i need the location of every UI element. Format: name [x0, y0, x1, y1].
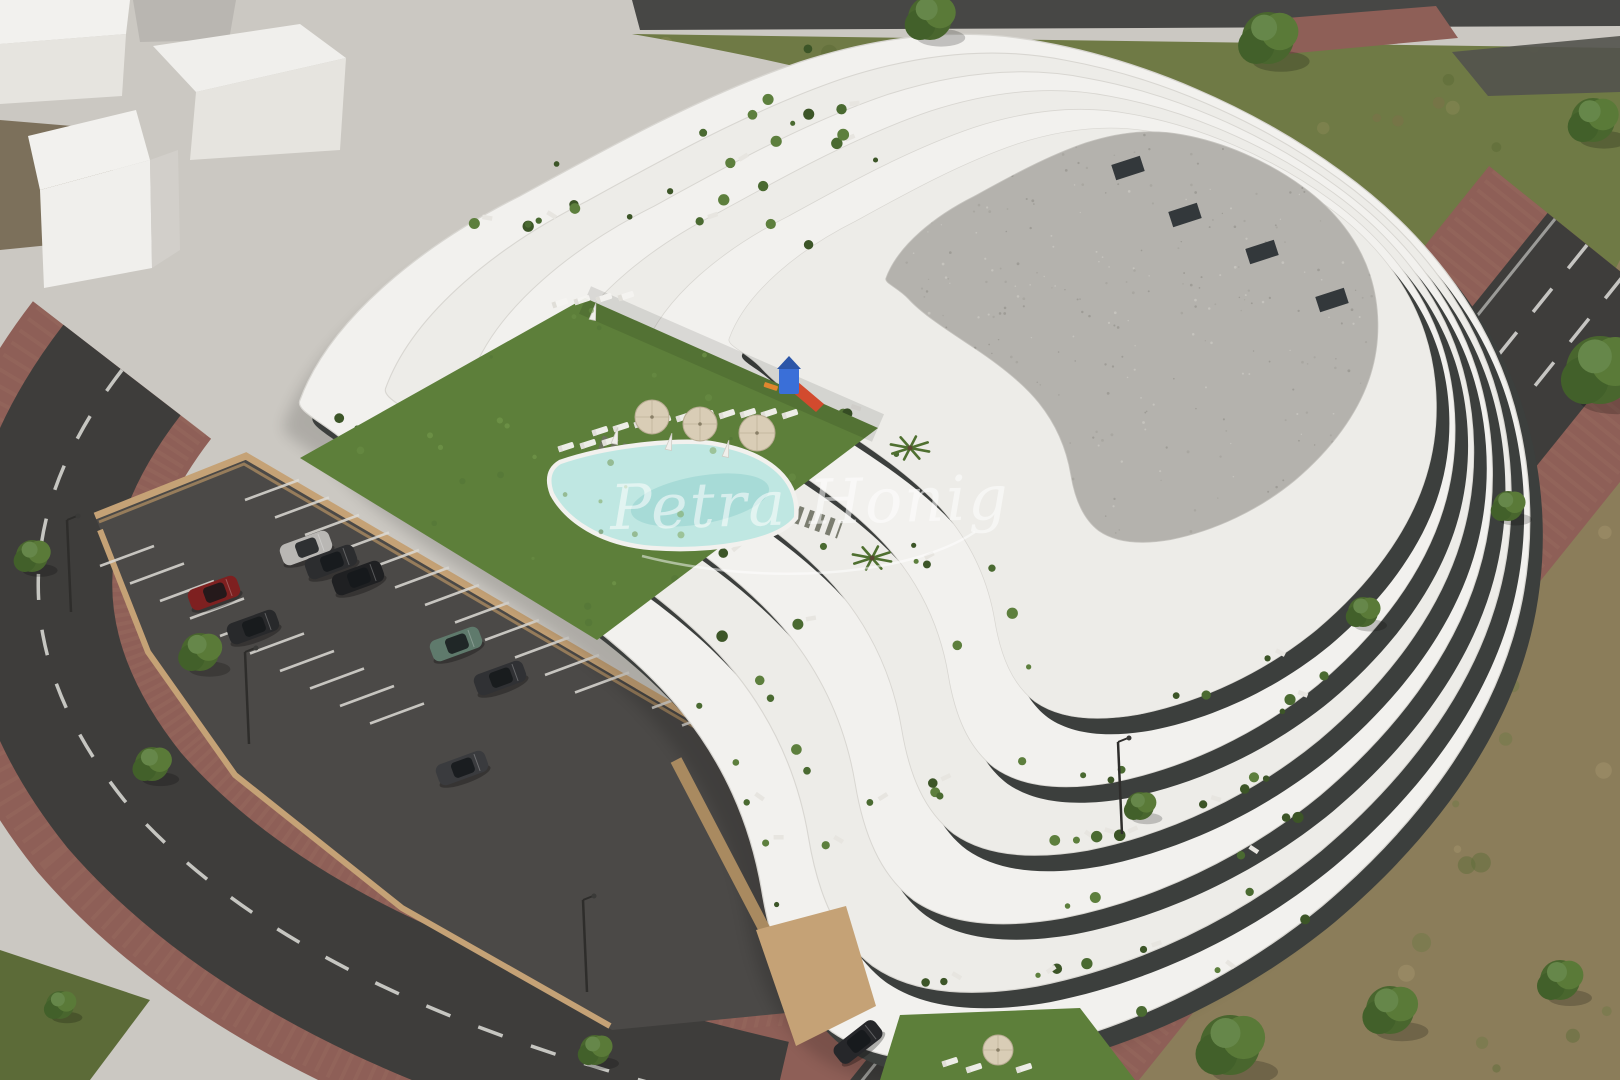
massing-front-corner: [0, 34, 126, 104]
terrace-plant: [1114, 829, 1126, 841]
terrace-plant: [1026, 664, 1031, 669]
terrace-plant: [732, 759, 739, 766]
terrace-plant: [1007, 608, 1018, 619]
terrace-plant: [716, 630, 728, 642]
terrace-plant: [1090, 892, 1101, 903]
terrace-plant: [718, 548, 728, 558]
terrace-plant: [1263, 775, 1270, 782]
terrace-plant: [1136, 1006, 1147, 1017]
terrace-plant: [1202, 690, 1211, 699]
terrace-plant: [936, 792, 943, 799]
terrace-plant: [1073, 837, 1080, 844]
terrace-plant: [804, 45, 813, 54]
terrace-plant: [1300, 914, 1310, 924]
terrace-plant: [469, 218, 480, 229]
terrace-plant: [1080, 772, 1086, 778]
patio-umbrella: [683, 407, 717, 441]
terrace-plant: [820, 543, 827, 550]
terrace-plant: [1107, 776, 1114, 783]
terrace-plant: [667, 188, 673, 194]
terrace-plant: [1282, 813, 1290, 821]
terrace-plant: [911, 543, 916, 548]
terrace-plant: [822, 841, 830, 849]
terrace-plant: [1065, 903, 1071, 909]
massing-side-b: [150, 150, 180, 268]
terrace-plant: [1284, 694, 1295, 705]
terrace-plant: [525, 221, 532, 228]
terrace-plant: [804, 240, 813, 249]
terrace-plant: [1245, 888, 1253, 896]
terrace-plant: [762, 94, 773, 105]
terrace-plant: [758, 181, 768, 191]
terrace-plant: [771, 136, 782, 147]
terrace-plant: [762, 839, 769, 846]
terrace-plant: [699, 129, 707, 137]
terrace-plant: [696, 217, 704, 225]
terrace-plant: [1240, 784, 1250, 794]
terrace-plant: [1215, 967, 1221, 973]
terrace-plant: [554, 161, 560, 167]
terrace-plant: [803, 767, 811, 775]
terrace-plant: [748, 110, 758, 120]
terrace-furniture: [774, 835, 784, 840]
terrace-plant: [755, 676, 765, 686]
terrace-plant: [837, 129, 849, 141]
street-top: [632, 0, 1620, 30]
terrace-plant: [766, 219, 776, 229]
terrace-plant: [570, 203, 581, 214]
terrace-plant: [928, 778, 938, 788]
terrace-plant: [1049, 835, 1060, 846]
terrace-plant: [334, 413, 344, 423]
massing-shaded-face: [133, 0, 236, 42]
terrace-plant: [988, 565, 995, 572]
terrace-plant: [914, 559, 919, 564]
terrace-plant: [536, 217, 542, 223]
terrace-plant: [1018, 757, 1026, 765]
patio-umbrella: [983, 1035, 1013, 1065]
terrace-plant: [767, 695, 774, 702]
terrace-plant: [792, 619, 803, 630]
terrace-plant: [696, 703, 702, 709]
terrace-plant: [791, 744, 802, 755]
terrace-plant: [1280, 709, 1286, 715]
terrace-plant: [1199, 800, 1207, 808]
terrace-plant: [923, 560, 931, 568]
terrace-plant: [1081, 958, 1092, 969]
terrace-plant: [836, 104, 846, 114]
terrace-plant: [1264, 655, 1270, 661]
patio-umbrella: [635, 400, 669, 434]
terrace-plant: [627, 214, 633, 220]
terrace-plant: [866, 799, 873, 806]
terrace-plant: [873, 157, 878, 162]
terrace-plant: [1292, 812, 1303, 823]
terrace-plant: [1173, 692, 1180, 699]
terrace-plant: [743, 799, 749, 805]
terrace-plant: [1091, 831, 1102, 842]
render-scene: [0, 0, 1620, 1080]
terrace-plant: [803, 109, 814, 120]
terrace-plant: [940, 978, 947, 985]
terrace-plant: [790, 121, 795, 126]
architectural-render: Petra Honig: [0, 0, 1620, 1080]
terrace-plant: [1237, 851, 1245, 859]
terrace-plant: [1249, 772, 1259, 782]
terrace-plant: [718, 194, 729, 205]
terrace-plant: [725, 158, 735, 168]
terrace-plant: [1319, 671, 1328, 680]
terrace-plant: [921, 978, 930, 987]
playground-tower: [779, 368, 799, 394]
patio-umbrella: [739, 415, 775, 451]
terrace-plant: [1140, 946, 1147, 953]
terrace-plant: [952, 641, 962, 651]
terrace-plant: [774, 902, 779, 907]
terrace-plant: [1035, 973, 1040, 978]
